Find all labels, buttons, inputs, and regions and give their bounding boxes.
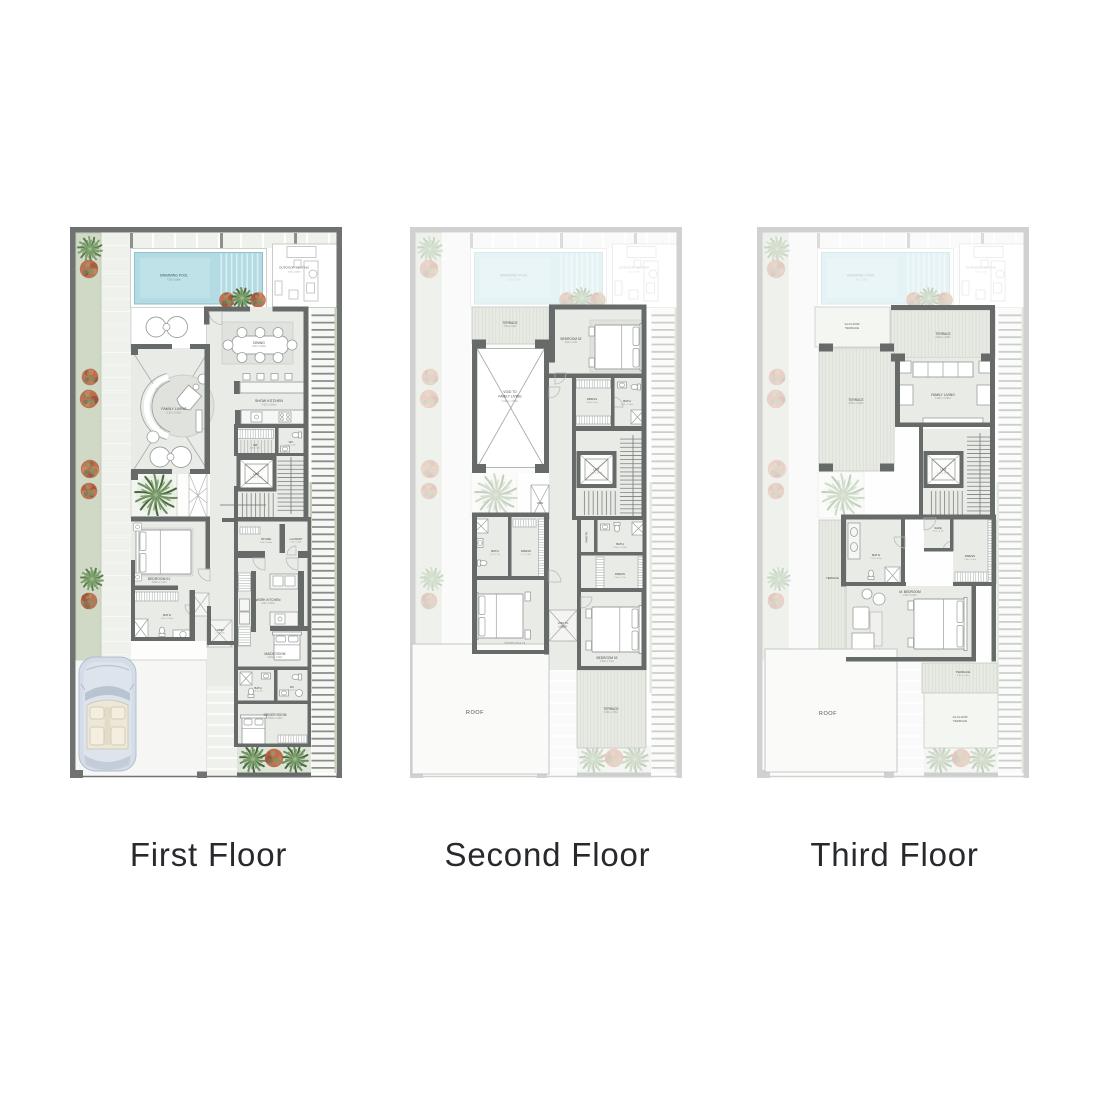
svg-text:TERRACE: TERRACE — [845, 326, 859, 330]
svg-text:4.00m x 3.50m: 4.00m x 3.50m — [935, 397, 951, 400]
svg-text:1.80 x 2.0m: 1.80 x 2.0m — [250, 448, 261, 450]
svg-text:2.50 x 3.0m: 2.50 x 3.0m — [870, 558, 881, 560]
svg-text:1.80 x 2.00m: 1.80 x 2.00m — [250, 477, 263, 479]
svg-text:Second Floor: Second Floor — [445, 836, 651, 873]
svg-text:BATH: BATH — [163, 613, 171, 617]
svg-text:BEDROOM 03: BEDROOM 03 — [597, 656, 618, 660]
svg-text:1.9 x 2.0m: 1.9 x 2.0m — [215, 633, 225, 635]
svg-text:2.80 x 2.60m: 2.80 x 2.60m — [261, 603, 274, 605]
svg-text:AM: AM — [253, 443, 258, 447]
svg-text:DRESS: DRESS — [965, 554, 975, 558]
svg-text:LIFT: LIFT — [253, 472, 259, 476]
svg-text:7.50 x 3.50m: 7.50 x 3.50m — [507, 279, 521, 282]
svg-text:TERRACE: TERRACE — [848, 398, 863, 402]
svg-text:DRIVER ROOM: DRIVER ROOM — [264, 713, 287, 717]
svg-text:7.50 x 3.50m: 7.50 x 3.50m — [854, 279, 868, 282]
svg-text:TERRACE: TERRACE — [603, 707, 618, 711]
svg-text:DRESS: DRESS — [521, 549, 531, 553]
svg-text:3.60m x 3.2m: 3.60m x 3.2m — [152, 581, 167, 584]
svg-text:2.00 x 1.80m: 2.00 x 1.80m — [260, 542, 273, 544]
svg-text:FAMILY LIVING: FAMILY LIVING — [161, 407, 186, 411]
svg-text:SAFE: SAFE — [934, 526, 941, 530]
svg-text:First Floor: First Floor — [130, 836, 287, 873]
svg-text:2.50 x 2.30m: 2.50 x 2.30m — [161, 618, 174, 620]
svg-text:LAUNDRY: LAUNDRY — [290, 537, 303, 541]
svg-text:1.9 x 1.6m: 1.9 x 1.6m — [253, 691, 263, 693]
svg-text:1.80 x 2.00m: 1.80 x 2.00m — [937, 472, 950, 474]
svg-text:PANTRY: PANTRY — [585, 531, 589, 542]
svg-text:5.40m x 4.50m: 5.40m x 4.50m — [502, 400, 518, 403]
svg-text:STORE: STORE — [261, 537, 271, 541]
svg-text:DRESS: DRESS — [587, 397, 597, 401]
svg-text:4.00 x 3.30m: 4.00 x 3.30m — [628, 271, 641, 273]
svg-text:BATH: BATH — [872, 553, 880, 557]
svg-text:LOBBY: LOBBY — [559, 625, 568, 629]
svg-text:SWIMMING POOL: SWIMMING POOL — [847, 274, 876, 278]
svg-text:2.00 x 1.80m: 2.00 x 1.80m — [290, 542, 302, 544]
svg-text:SWIMMING POOL: SWIMMING POOL — [160, 274, 189, 278]
svg-text:2.60m x 2.50m: 2.60m x 2.50m — [267, 657, 282, 659]
svg-text:4.00 x 3.30m: 4.00 x 3.30m — [288, 271, 301, 273]
svg-text:1.6x1.6m: 1.6x1.6m — [288, 690, 296, 692]
svg-text:4.00m x 2.00m: 4.00m x 2.00m — [935, 337, 950, 339]
svg-text:TERRACE: TERRACE — [502, 321, 517, 325]
svg-text:2.30m x 1.60m: 2.30m x 1.60m — [613, 547, 627, 549]
svg-text:LIFT: LIFT — [593, 468, 599, 472]
svg-text:2.60m x 2.20m: 2.60m x 2.20m — [267, 718, 282, 720]
svg-text:TERRACE: TERRACE — [826, 576, 839, 580]
svg-text:3.60m x 3.5m: 3.60m x 3.5m — [604, 712, 618, 714]
svg-text:LIFT: LIFT — [940, 468, 946, 472]
svg-text:BATH: BATH — [254, 686, 261, 690]
svg-text:3.6m x 2.0m: 3.6m x 2.0m — [504, 326, 517, 328]
svg-text:1.80 x 2.00m: 1.80 x 2.00m — [590, 472, 603, 474]
svg-text:FAMILY LIVING: FAMILY LIVING — [498, 395, 522, 399]
svg-text:ROOF: ROOF — [819, 711, 837, 717]
svg-text:BATH: BATH — [616, 542, 624, 546]
svg-text:VOID TO: VOID TO — [503, 390, 517, 394]
svg-text:3.6m x 1.4m: 3.6m x 1.4m — [957, 675, 969, 677]
svg-text:3.6m x 3.2m: 3.6m x 3.2m — [565, 342, 578, 344]
svg-text:1.4m x 1.5m: 1.4m x 1.5m — [932, 531, 943, 533]
svg-text:4.50 x 5.40m: 4.50 x 5.40m — [903, 594, 917, 597]
svg-text:1.5 x 2.0m: 1.5 x 2.0m — [286, 445, 296, 447]
svg-text:6.00 x 5.00m: 6.00 x 5.00m — [167, 410, 182, 414]
svg-text:2.0m x 2.9m: 2.0m x 2.9m — [964, 559, 976, 561]
svg-text:WC: WC — [290, 685, 294, 689]
svg-text:WORK KITCHEN: WORK KITCHEN — [256, 598, 281, 602]
svg-text:TERRACE: TERRACE — [956, 670, 970, 674]
svg-text:2.0m x 1.7m: 2.0m x 1.7m — [614, 577, 626, 579]
svg-text:7.50 x 3.50m: 7.50 x 3.50m — [167, 279, 181, 282]
svg-text:BATH: BATH — [623, 399, 631, 403]
svg-text:LOBBY: LOBBY — [215, 628, 224, 632]
svg-text:VOID: VOID — [537, 501, 543, 505]
svg-text:3.50m x 5.40m: 3.50m x 5.40m — [848, 403, 863, 405]
svg-text:DRESS: DRESS — [615, 572, 625, 576]
svg-text:ROOF: ROOF — [466, 710, 484, 716]
svg-text:VOID TO: VOID TO — [558, 621, 569, 625]
svg-text:MAIDS ROOM: MAIDS ROOM — [265, 652, 286, 656]
svg-text:4.00 x 2.00m: 4.00 x 2.00m — [262, 402, 277, 406]
svg-text:4.00 x 3.30m: 4.00 x 3.30m — [975, 271, 988, 273]
svg-text:BEDROOM 02: BEDROOM 02 — [561, 337, 582, 341]
svg-text:2.3 x 1.7m: 2.3 x 1.7m — [490, 554, 500, 556]
svg-text:3.60m x 3.2m: 3.60m x 3.2m — [600, 661, 614, 663]
svg-text:Third Floor: Third Floor — [810, 836, 978, 873]
svg-text:1.80 x 2.0m: 1.80 x 2.0m — [586, 402, 597, 404]
svg-text:WC: WC — [289, 440, 294, 444]
svg-text:1.7 x 2.9m: 1.7 x 2.9m — [521, 554, 531, 556]
svg-text:TERRACE: TERRACE — [935, 332, 950, 336]
svg-text:BATH: BATH — [491, 549, 499, 553]
svg-text:TERRACE: TERRACE — [953, 719, 967, 723]
svg-text:SHOW KITCHEN: SHOW KITCHEN — [255, 399, 283, 403]
svg-text:SWIMMING POOL: SWIMMING POOL — [500, 274, 529, 278]
svg-text:3.60 x 3.20m: 3.60 x 3.20m — [252, 345, 266, 348]
